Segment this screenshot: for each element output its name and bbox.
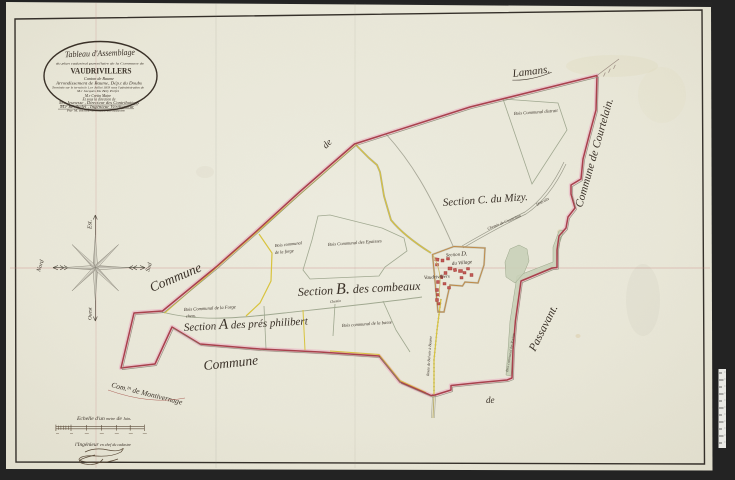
svg-text:Par M. Richez Géomètre du cada: Par M. Richez Géomètre du cadastre (66, 109, 126, 113)
svg-text:VAUDRIVILLERS: VAUDRIVILLERS (71, 66, 132, 76)
svg-text:Est.: Est. (88, 220, 94, 230)
svg-text:Ouest: Ouest (88, 307, 94, 320)
svg-text:de: de (486, 395, 495, 405)
svg-text:chem.: chem. (186, 313, 196, 319)
svg-text:M.r Jacques Du Bely Prefet: M.r Jacques Du Bely Prefet (76, 89, 120, 93)
svg-text:Echelle d'un metre de Juin.: Echelle d'un metre de Juin. (76, 416, 132, 422)
